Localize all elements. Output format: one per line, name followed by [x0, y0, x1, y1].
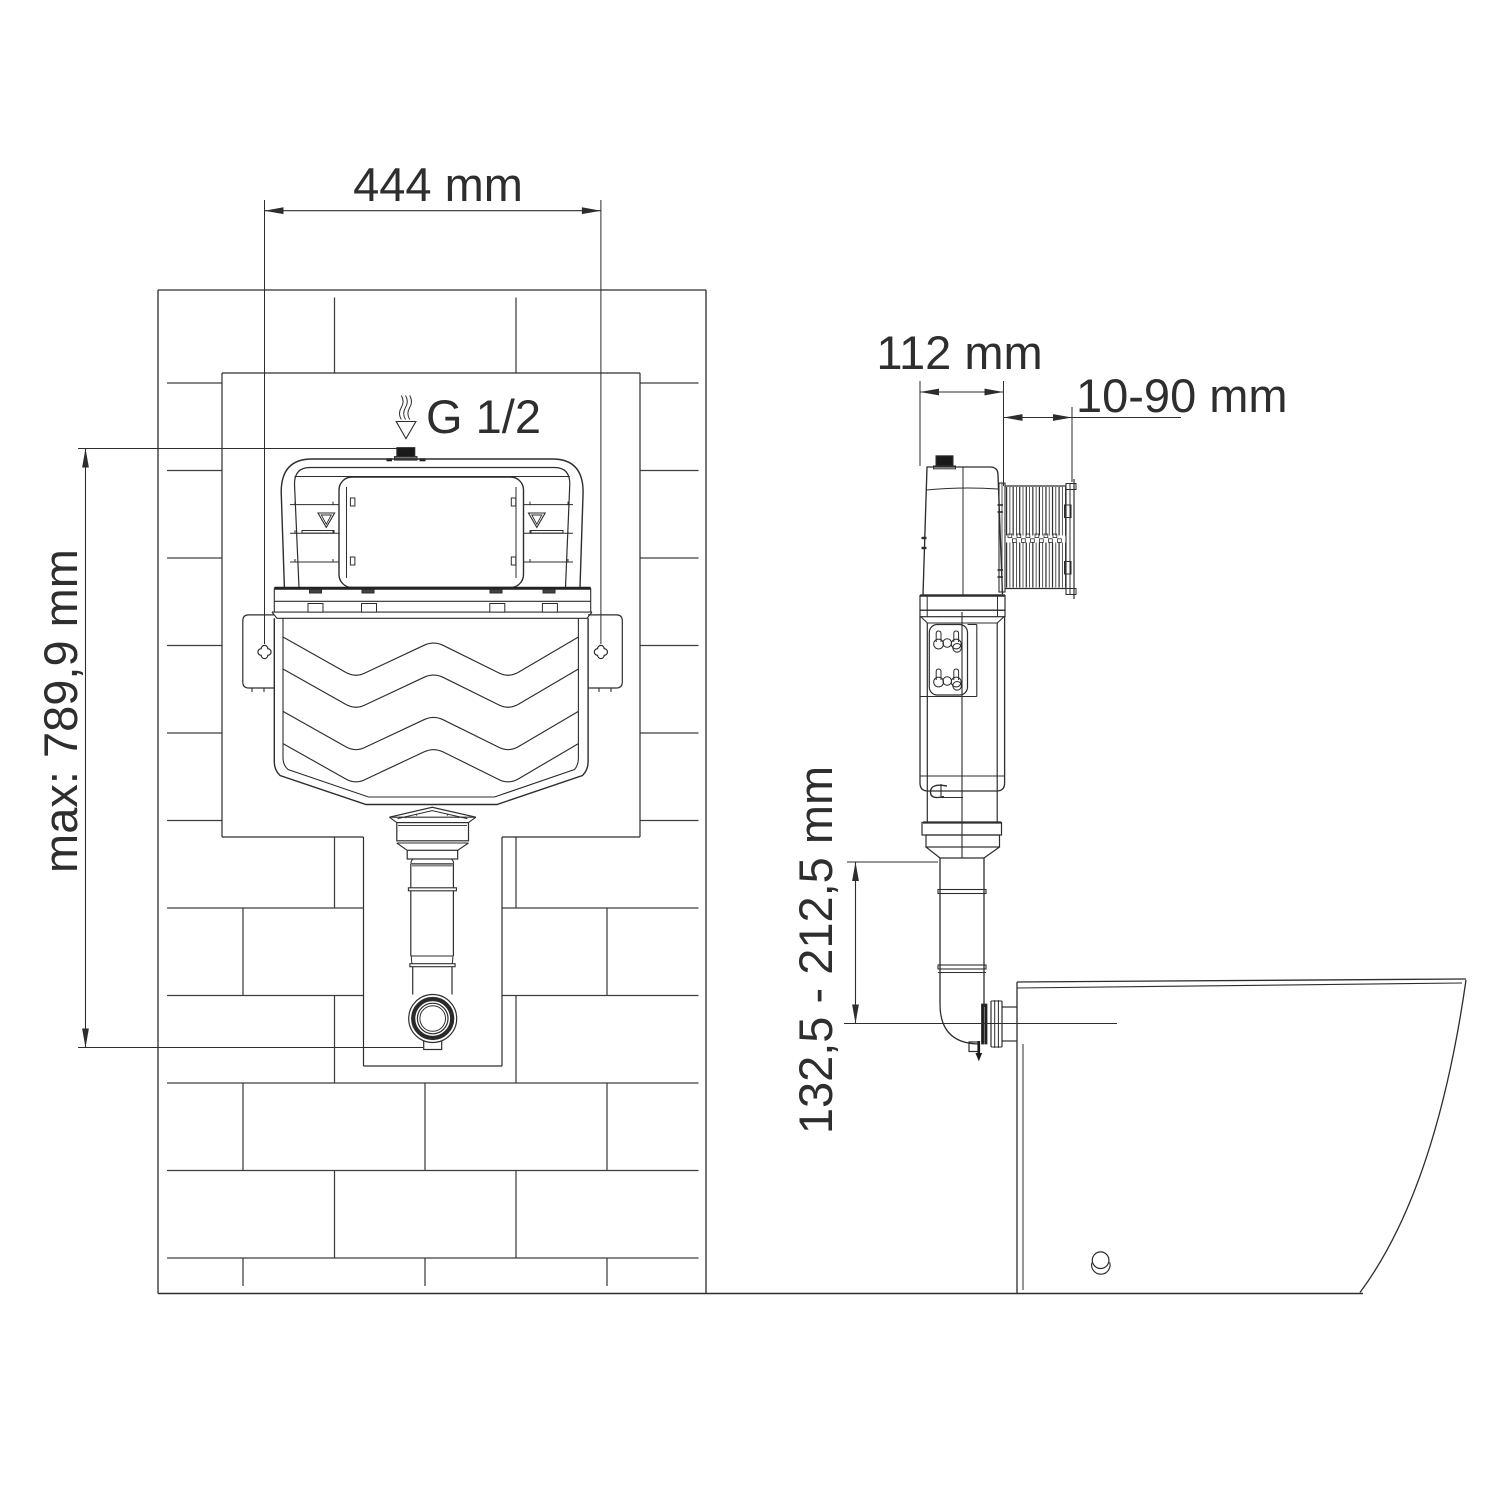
svg-text:132,5 - 212,5 mm: 132,5 - 212,5 mm — [789, 766, 842, 1134]
svg-text:444 mm: 444 mm — [353, 158, 523, 211]
svg-text:G 1/2: G 1/2 — [426, 390, 541, 443]
svg-text:10-90 mm: 10-90 mm — [1076, 369, 1288, 422]
svg-text:max: 789,9 mm: max: 789,9 mm — [34, 549, 87, 873]
svg-text:112 mm: 112 mm — [876, 326, 1042, 379]
